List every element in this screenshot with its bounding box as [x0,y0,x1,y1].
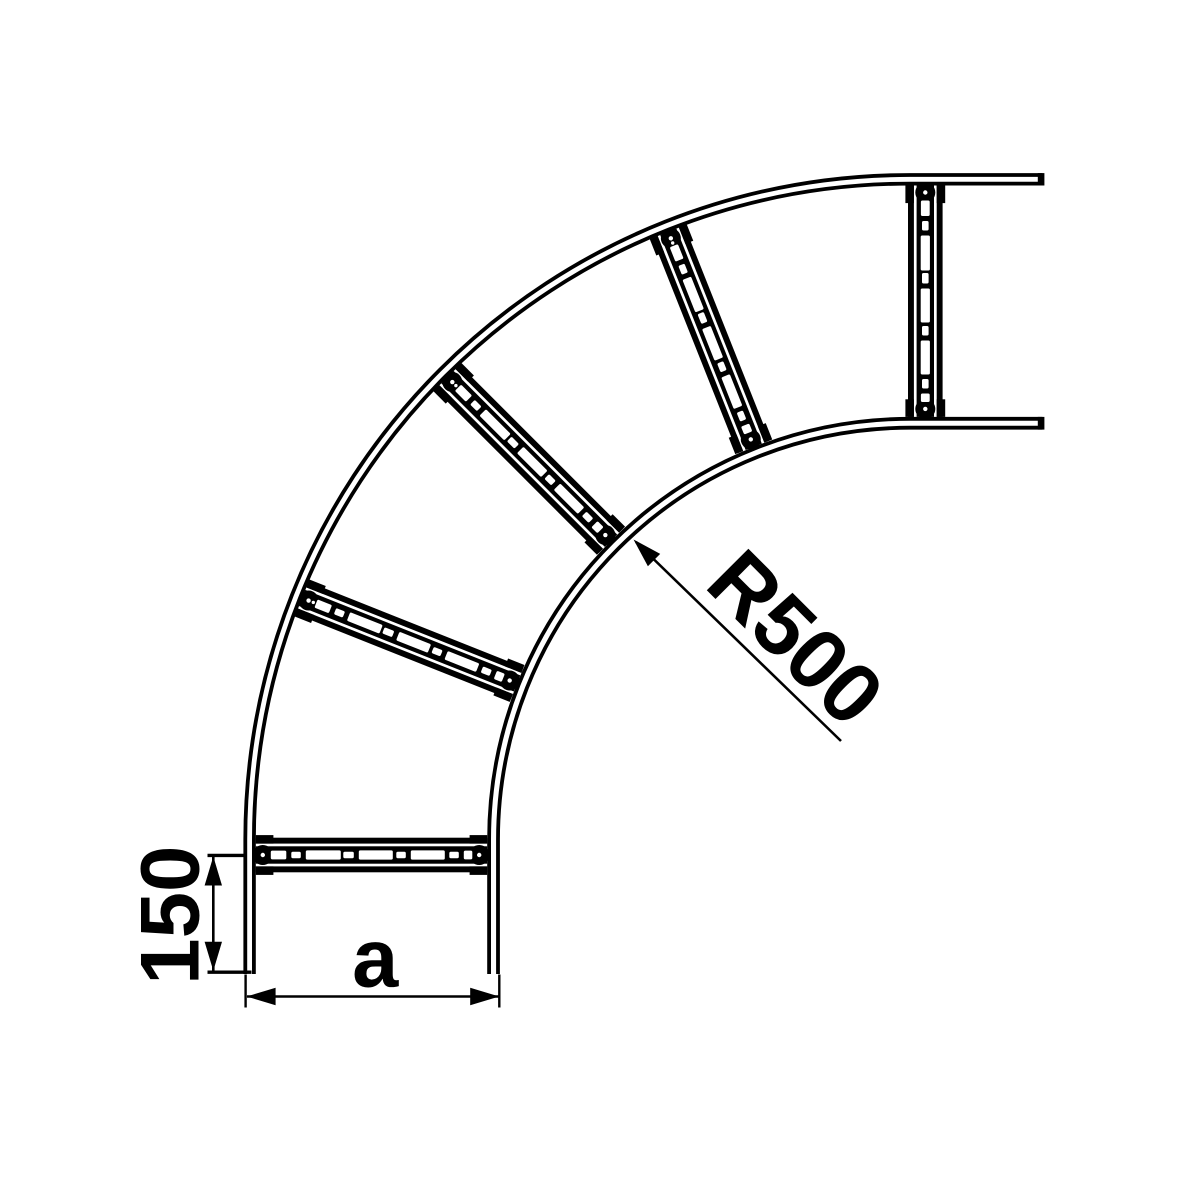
svg-text:a: a [352,912,399,1005]
svg-text:150: 150 [122,846,216,985]
